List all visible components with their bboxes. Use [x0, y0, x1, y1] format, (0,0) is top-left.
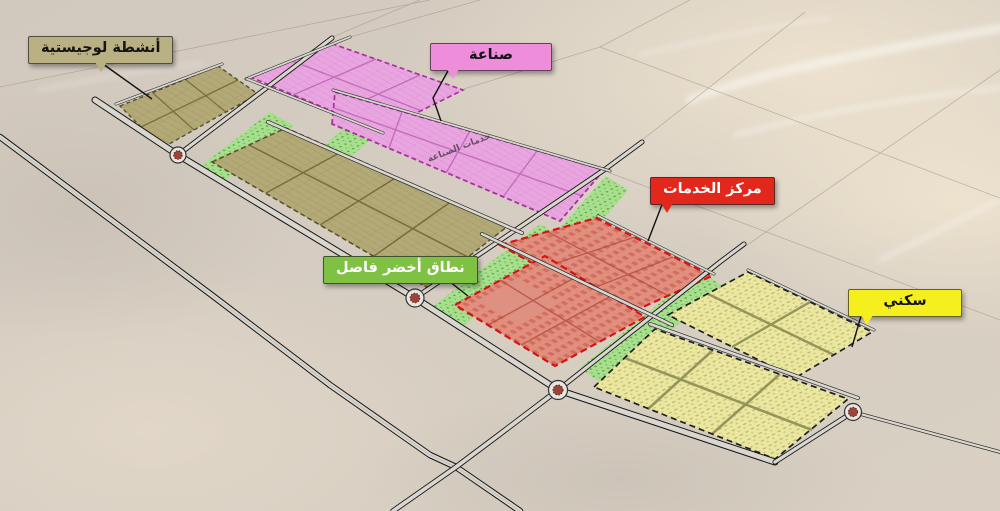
roundabout — [170, 147, 186, 163]
callout-tail — [861, 315, 873, 325]
roundabout — [549, 381, 568, 400]
callout-green-buffer-label: نطاق أخضر فاصل — [336, 260, 465, 276]
callout-green-buffer: نطاق أخضر فاصل — [323, 256, 478, 284]
callout-residential: سكني — [848, 289, 962, 317]
callout-tail — [447, 69, 459, 79]
callout-tail — [95, 62, 107, 72]
callout-logistics-label: أنشطة لوجيستية — [41, 40, 160, 56]
callout-logistics: أنشطة لوجيستية — [28, 36, 173, 64]
callout-industry: صناعة — [430, 43, 552, 71]
callout-tail — [661, 203, 673, 213]
masterplan-canvas: خدمات الصناعة — [0, 0, 1000, 511]
callout-services: مركز الخدمات — [650, 177, 775, 205]
roundabout — [406, 289, 424, 307]
callout-industry-label: صناعة — [469, 47, 513, 63]
callout-services-label: مركز الخدمات — [663, 181, 762, 197]
callout-residential-label: سكني — [883, 293, 926, 309]
masterplan-map: خدمات الصناعة أنشطة لوجيستية صناعة مركز … — [0, 0, 1000, 511]
roundabout — [845, 404, 862, 421]
